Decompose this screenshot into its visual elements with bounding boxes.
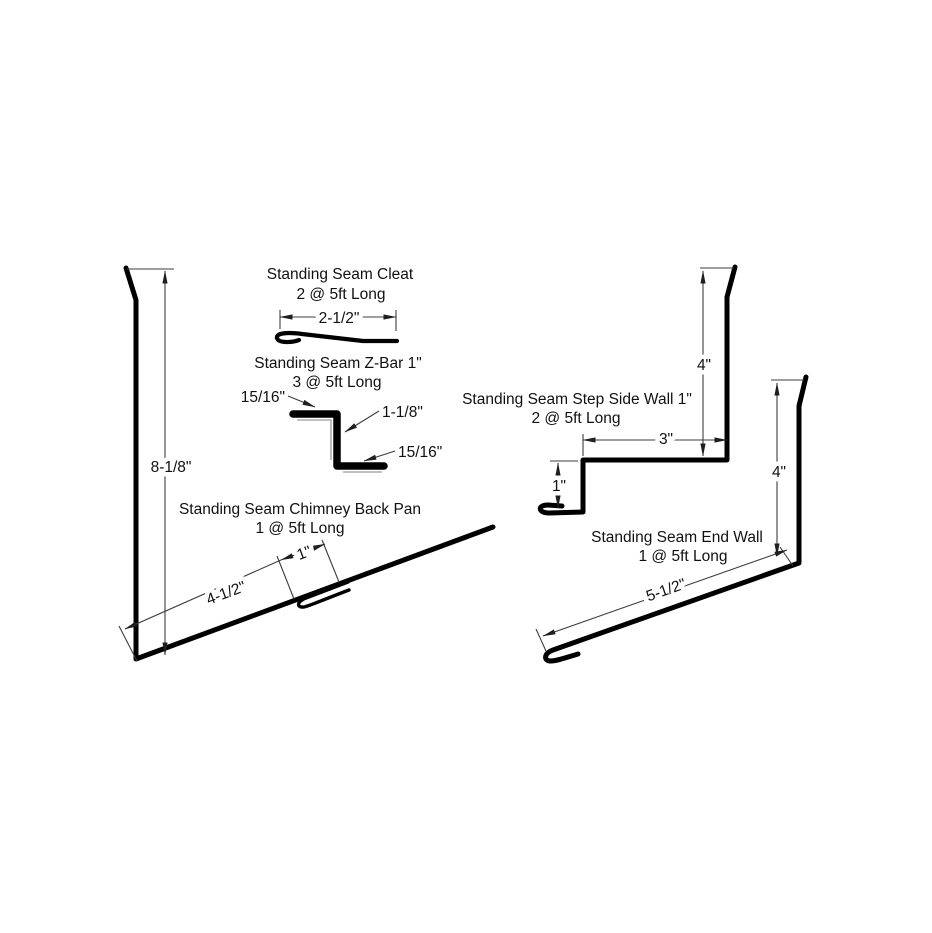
z-bar-top-leg-dimension: 15/16" [241, 389, 285, 406]
z-bar-bottom-leg-dimension: 15/16" [398, 444, 442, 461]
z-bar-profile [293, 414, 384, 466]
z-bar-top-leg-leader [288, 396, 315, 407]
chimney-height-dimension: 8-1/8" [151, 459, 192, 476]
step-side-wall-drawing: Standing Seam Step Side Wall 1" 2 @ 5ft … [462, 267, 735, 513]
step-step-dimension: 1" [552, 478, 566, 495]
end-wall-title: Standing Seam End Wall [591, 529, 763, 546]
drawing-sheet: Standing Seam Cleat 2 @ 5ft Long 2-1/2" … [0, 0, 932, 933]
chimney-pan-dimension: 4-1/2" [204, 578, 248, 608]
z-bar-title: Standing Seam Z-Bar 1" [254, 355, 421, 372]
step-width-dimension: 3" [659, 431, 673, 448]
z-bar-web-dimension: 1-1/8" [382, 404, 423, 421]
cleat-profile [277, 333, 397, 342]
cleat-width-dimension: 2-1/2" [319, 310, 360, 327]
profiles-canvas: Standing Seam Cleat 2 @ 5ft Long 2-1/2" … [0, 0, 932, 933]
step-side-wall-quantity: 2 @ 5ft Long [532, 410, 621, 427]
chimney-back-pan-drawing: Standing Seam Chimney Back Pan 1 @ 5ft L… [119, 268, 493, 661]
step-side-wall-profile [540, 267, 735, 513]
end-wall-pan-extension-left [536, 629, 546, 651]
z-bar-web-leader [345, 411, 379, 432]
end-wall-quantity: 1 @ 5ft Long [639, 548, 728, 565]
chimney-hem-dimension: 1" [295, 543, 314, 564]
step-side-wall-title: Standing Seam Step Side Wall 1" [462, 391, 692, 408]
z-bar-quantity: 3 @ 5ft Long [293, 374, 382, 391]
z-bar-bottom-leg-leader [364, 451, 395, 461]
end-wall-height-dimension: 4" [772, 464, 786, 481]
cleat-title: Standing Seam Cleat [267, 266, 414, 283]
cleat-quantity: 2 @ 5ft Long [297, 286, 386, 303]
chimney-back-pan-quantity: 1 @ 5ft Long [256, 520, 345, 537]
chimney-hem-extension-left [277, 556, 294, 599]
step-height-dimension: 4" [697, 357, 711, 374]
chimney-back-pan-title: Standing Seam Chimney Back Pan [179, 501, 421, 518]
chimney-pan-dimension-line [125, 560, 281, 629]
cleat-drawing: Standing Seam Cleat 2 @ 5ft Long 2-1/2" [267, 266, 414, 342]
chimney-hem-extension-right [322, 540, 339, 582]
z-bar-inner-face-top [297, 420, 331, 460]
z-bar-drawing: Standing Seam Z-Bar 1" 3 @ 5ft Long 15/1… [241, 355, 443, 472]
end-wall-pan-dimension: 5-1/2" [644, 576, 688, 606]
